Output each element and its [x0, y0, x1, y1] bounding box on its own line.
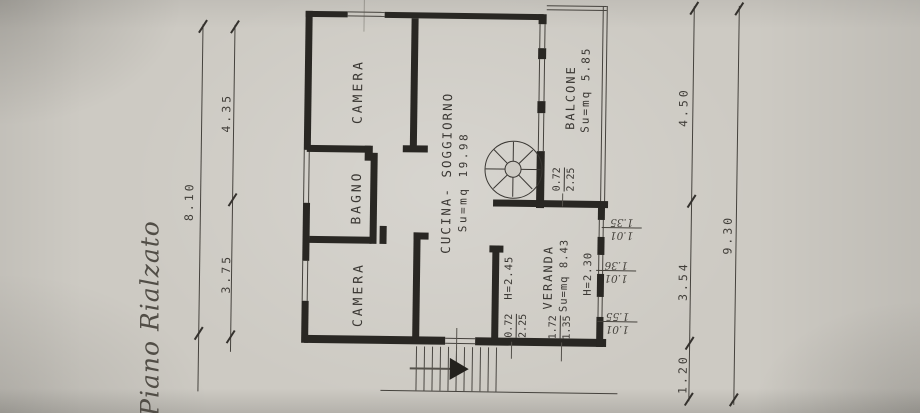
window-dim-width: 1.35: [610, 216, 634, 227]
balcony-rail: [547, 5, 607, 7]
door-opening: [445, 343, 475, 345]
door-dim-width: 0.72: [552, 167, 563, 191]
dimension-line: [230, 25, 236, 352]
door-dim-height: 2.25: [566, 167, 577, 191]
wall-segment: [304, 335, 445, 345]
height-label-hall: H=2.45: [503, 256, 516, 300]
wall-segment: [385, 12, 544, 20]
window-opening: [307, 261, 309, 301]
wall-segment: [412, 232, 421, 340]
wall-segment: [403, 145, 428, 152]
window-dim-width: 1.55: [606, 310, 630, 321]
wall-segment: [538, 48, 546, 59]
dimension-label-total-right: 9.30: [720, 215, 735, 255]
stair-direction-arrow: [450, 358, 469, 380]
window-dim-height: 1.35: [562, 315, 573, 339]
dimension-label-lower-right: 1.20: [675, 354, 690, 394]
window-dim-width: 1.36: [604, 259, 628, 270]
ground-line: [380, 390, 617, 394]
wall-segment: [302, 203, 310, 261]
stair-riser: [487, 347, 489, 391]
door-dim-entry: 0.72 2.25: [504, 314, 530, 338]
wall-segment: [414, 232, 429, 239]
height-label-veranda: H=2.30: [582, 252, 595, 296]
stair-riser: [495, 348, 497, 392]
balcony-rail: [547, 9, 607, 11]
window-dim-3: 1.01 1.55: [597, 310, 637, 335]
window-opening: [543, 113, 545, 151]
extension-line: [561, 342, 562, 361]
window-opening: [348, 11, 385, 13]
window-opening: [538, 59, 540, 101]
room-label-cucina-soggiorno: CUCINA- SOGGIORNO: [438, 92, 455, 254]
dimension-label-upper-right: 4.50: [676, 87, 691, 127]
dimension-line: [733, 6, 740, 405]
wall-segment: [410, 18, 419, 147]
window-dim-width: 1.72: [548, 315, 559, 339]
wall-segment: [491, 245, 499, 341]
wall-segment: [379, 226, 386, 244]
dimension-label-total-left: 8.10: [182, 181, 197, 221]
room-label-camera-bottom: CAMERA: [351, 262, 367, 327]
door-dim-width: 0.72: [504, 314, 515, 338]
wall-segment: [537, 101, 545, 113]
window-dim-sill: 1.01: [610, 229, 634, 240]
window-opening: [302, 261, 304, 301]
wall-segment: [493, 199, 608, 208]
floorplan-drawing: 8.10 4.35 3.75 4.50 3.54 1.20 9.30: [0, 0, 920, 413]
wall-segment: [307, 145, 371, 153]
window-opening: [538, 113, 540, 151]
window-dim-sill: 1.01: [606, 323, 630, 334]
room-area-veranda: Su=mq 8.43: [558, 239, 571, 312]
wall-segment: [539, 14, 547, 24]
window-opening: [544, 24, 546, 48]
door-dim-height: 2.25: [518, 314, 529, 338]
floorplan-scan: Piano Rialzato 8.10 4.35 3.75 4.50 3.54 …: [0, 0, 920, 413]
wall-segment: [369, 153, 377, 244]
window-opening: [308, 150, 310, 203]
window-dim-sill: 1.01: [604, 272, 628, 283]
wall-segment: [489, 245, 503, 252]
dimension-label-middle-right: 3.54: [676, 261, 691, 301]
dimension-label-lower-left: 3.75: [219, 254, 234, 294]
room-label-balcone: BALCONE: [563, 65, 578, 130]
window-opening: [543, 59, 545, 101]
window-opening: [348, 15, 385, 17]
balcony-rail: [604, 6, 608, 202]
extension-line: [511, 342, 512, 359]
room-label-camera-top: CAMERA: [351, 59, 367, 124]
window-opening: [303, 150, 305, 203]
room-label-veranda: VERANDA: [541, 245, 556, 310]
stair-riser: [479, 347, 481, 391]
dimension-label-upper-left: 4.35: [219, 93, 234, 133]
wall-segment: [309, 236, 371, 244]
window-dim-1: 1.01 1.35: [602, 216, 642, 241]
room-label-bagno: BAGNO: [349, 170, 365, 224]
room-area-cucina-soggiorno: Su=mq 19.98: [456, 132, 470, 233]
window-dim-2: 1.01 1.36: [596, 259, 636, 284]
window-dim-veranda-south: 1.72 1.35: [548, 315, 574, 339]
dimension-line: [197, 24, 203, 391]
wall-segment: [306, 11, 348, 18]
wall-segment: [304, 11, 313, 150]
window-opening: [599, 220, 600, 237]
extension-line: [562, 193, 563, 206]
door-opening: [445, 338, 475, 340]
stair-riser: [471, 347, 473, 391]
window-opening: [539, 24, 541, 48]
door-dim-balcony: 0.72 2.25: [552, 167, 578, 191]
room-area-balcone: Su=mq 5.85: [579, 47, 593, 133]
